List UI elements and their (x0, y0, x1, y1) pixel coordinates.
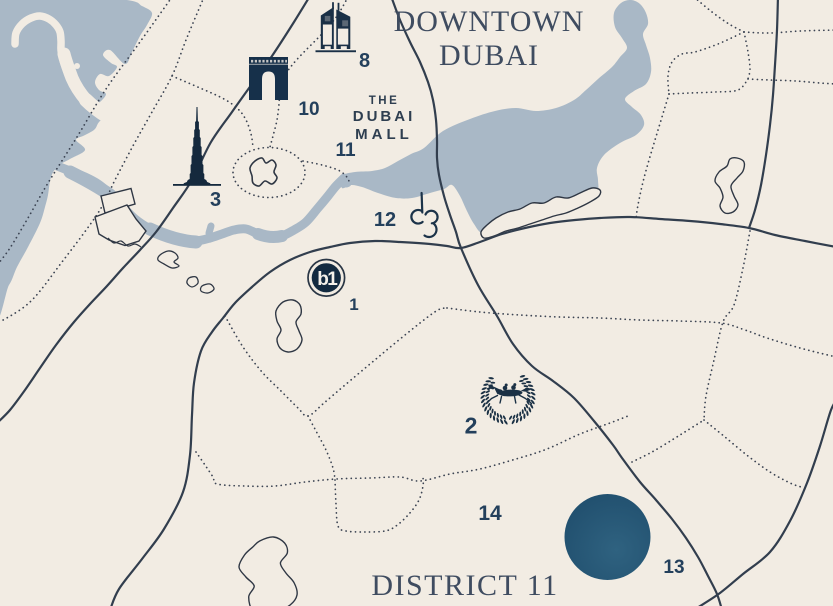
svg-text:12: 12 (374, 209, 396, 231)
svg-text:2: 2 (465, 413, 478, 439)
svg-text:8: 8 (359, 50, 370, 72)
svg-text:10: 10 (298, 99, 319, 120)
svg-text:13: 13 (663, 557, 684, 578)
svg-text:THE: THE (369, 95, 400, 107)
svg-text:DUBAI: DUBAI (353, 108, 416, 125)
svg-text:DOWNTOWN: DOWNTOWN (394, 5, 585, 38)
svg-text:14: 14 (478, 502, 502, 525)
svg-text:MALL: MALL (355, 126, 413, 143)
svg-text:b1: b1 (317, 269, 338, 290)
svg-text:DUBAI: DUBAI (439, 39, 539, 72)
svg-text:11: 11 (335, 140, 356, 161)
svg-text:DISTRICT 11: DISTRICT 11 (371, 569, 558, 602)
svg-text:3: 3 (210, 189, 221, 211)
svg-text:1: 1 (349, 295, 358, 314)
